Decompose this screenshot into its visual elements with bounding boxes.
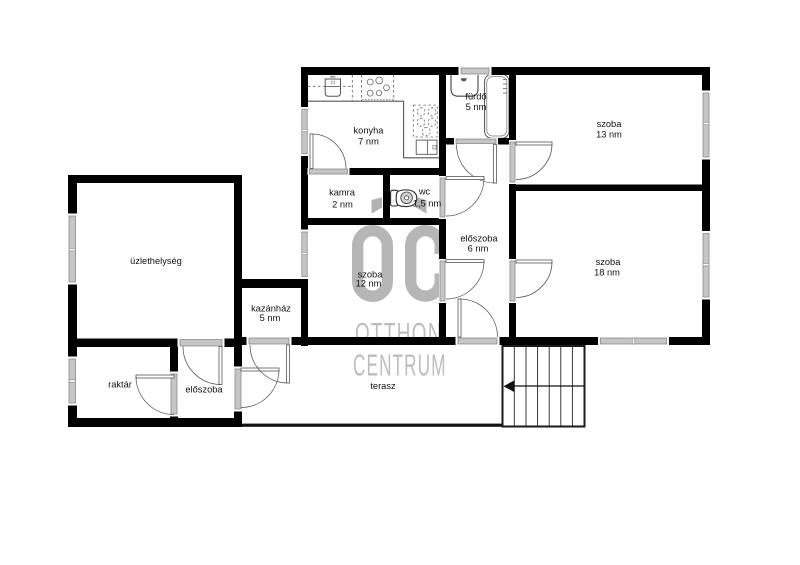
svg-text:6 nm: 6 nm [468,243,489,253]
svg-text:előszoba: előszoba [185,384,223,394]
svg-text:szoba: szoba [597,119,623,129]
svg-text:CENTRUM: CENTRUM [353,348,447,382]
svg-text:terasz: terasz [370,381,396,391]
svg-text:18 nm: 18 nm [594,267,620,277]
svg-text:12 nm: 12 nm [356,279,382,289]
svg-text:előszoba: előszoba [460,233,498,243]
svg-text:2 nm: 2 nm [332,199,353,209]
svg-text:konyha: konyha [354,125,385,135]
svg-text:kamra: kamra [329,187,356,197]
svg-text:üzlethelység: üzlethelység [130,256,182,266]
svg-text:szoba: szoba [596,257,622,267]
svg-text:5 nm: 5 nm [260,313,281,323]
svg-text:1,5 nm: 1,5 nm [413,198,442,208]
svg-text:5 nm: 5 nm [466,102,487,112]
svg-text:wc: wc [418,186,431,196]
svg-text:fürdő: fürdő [465,91,486,101]
svg-text:OTTHON: OTTHON [355,319,443,350]
svg-text:13 nm: 13 nm [596,129,622,139]
svg-text:kazánház: kazánház [251,303,291,313]
svg-text:7 nm: 7 nm [358,136,379,146]
svg-text:raktár: raktár [108,379,132,389]
